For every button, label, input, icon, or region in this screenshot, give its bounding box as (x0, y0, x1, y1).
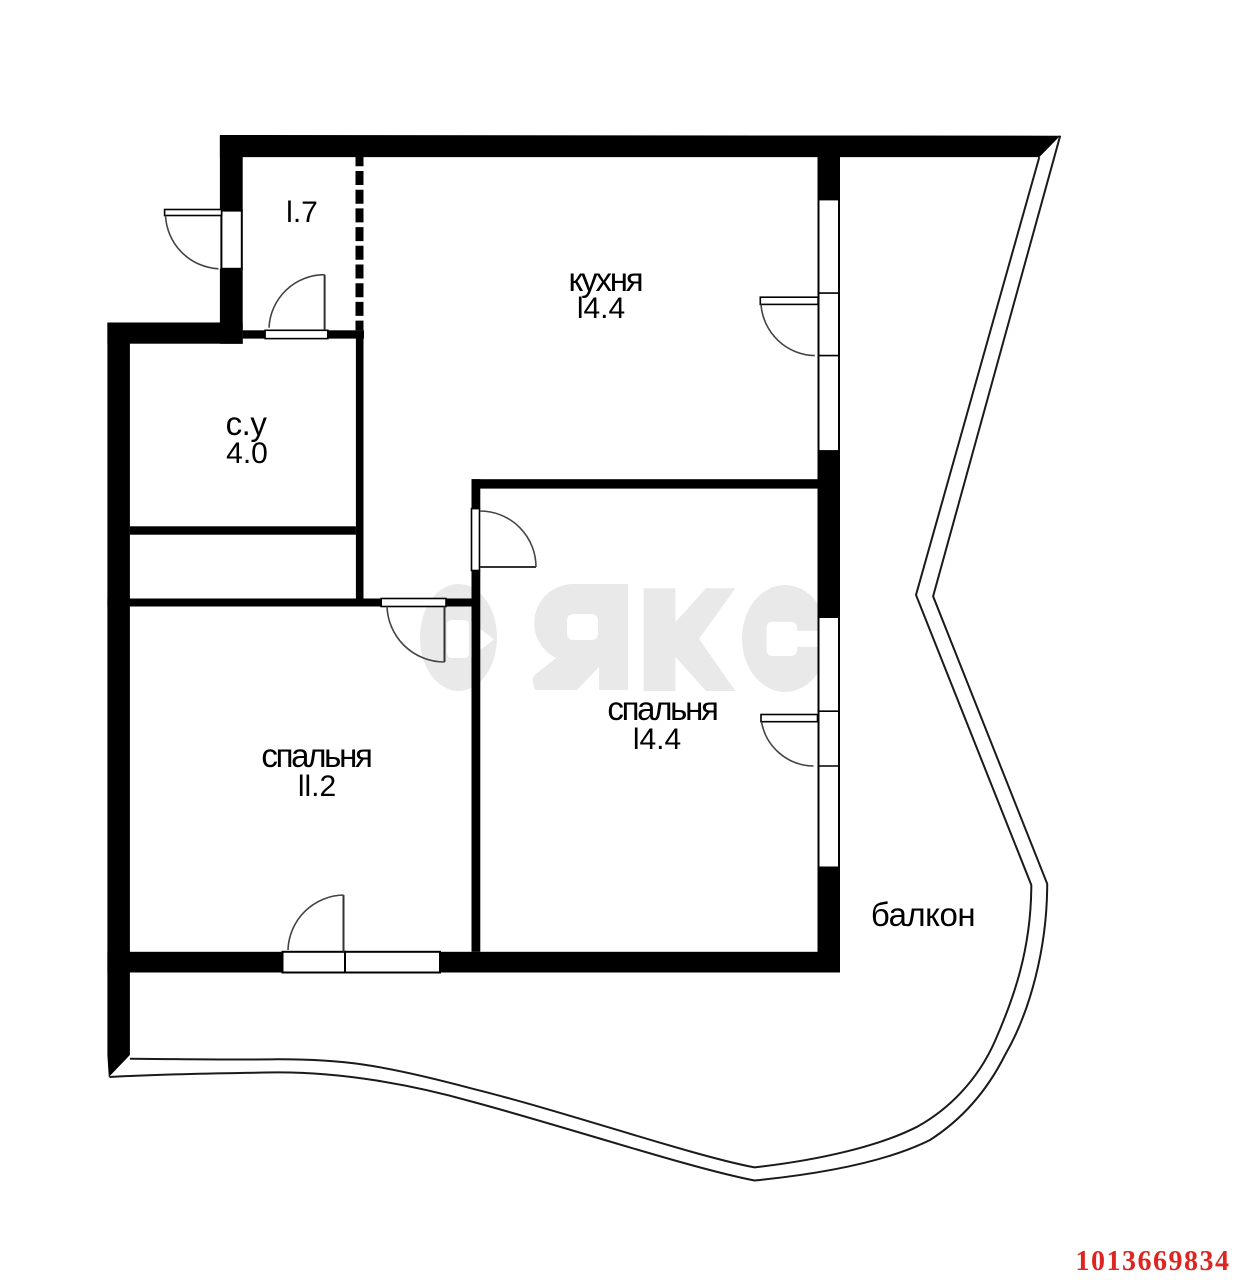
svg-text:балкон: балкон (871, 896, 975, 933)
svg-text:спальня: спальня (607, 690, 717, 727)
svg-text:1013669834: 1013669834 (1076, 1246, 1231, 1277)
svg-text:l4.4: l4.4 (633, 723, 681, 756)
svg-text:ll.2: ll.2 (298, 770, 336, 803)
svg-text:4.0: 4.0 (226, 437, 268, 470)
svg-text:спальня: спальня (261, 737, 371, 774)
svg-text:l.7: l.7 (286, 196, 318, 229)
svg-text:l4.4: l4.4 (577, 292, 625, 325)
